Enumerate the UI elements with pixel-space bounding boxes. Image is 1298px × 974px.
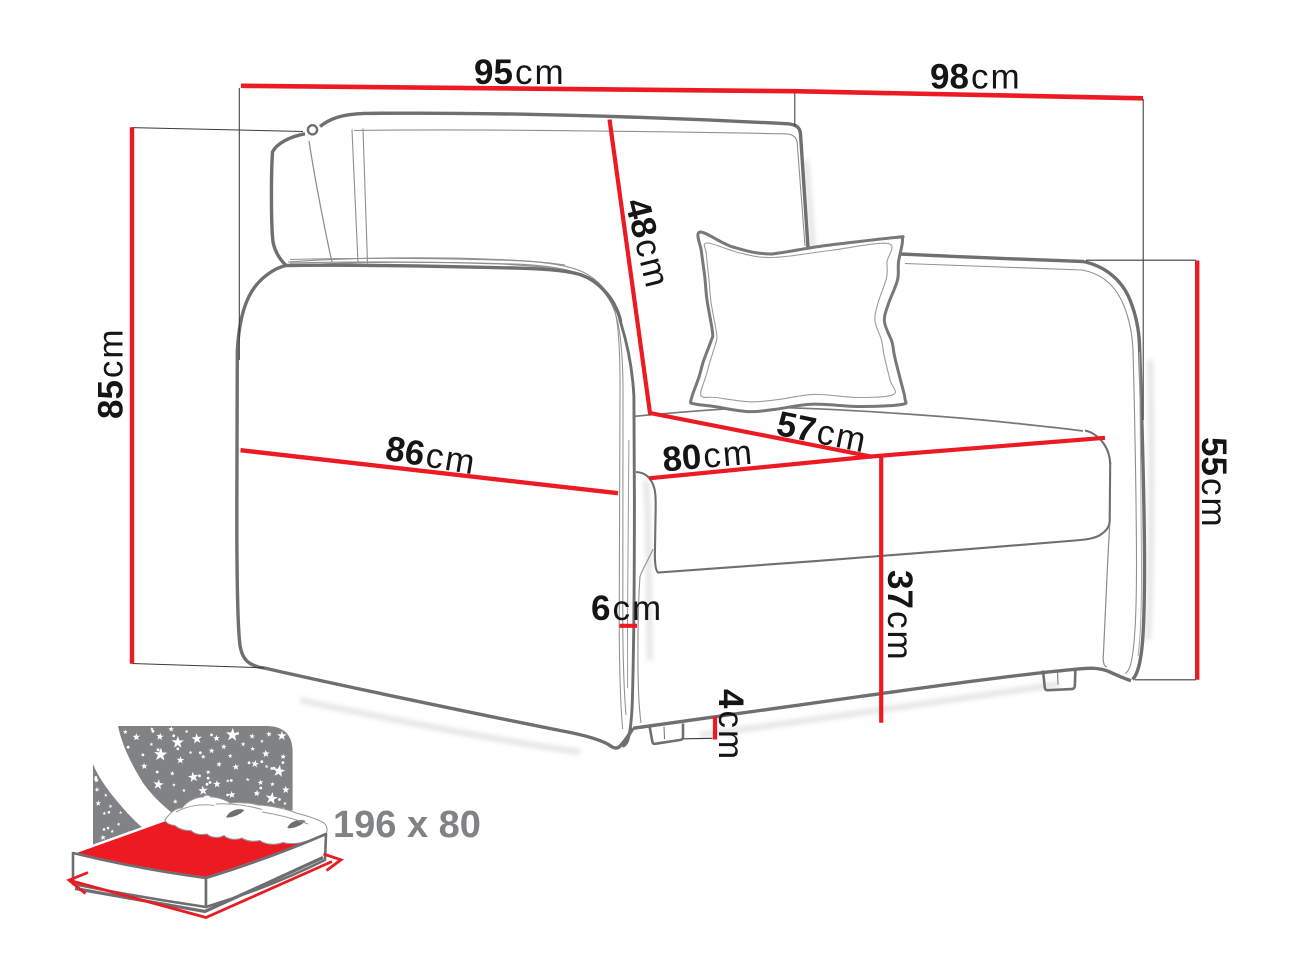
svg-text:4cm: 4cm <box>711 689 750 761</box>
svg-text:95cm: 95cm <box>474 53 566 92</box>
svg-text:80cm: 80cm <box>661 433 756 480</box>
svg-text:85cm: 85cm <box>91 327 130 419</box>
svg-text:196 x 80: 196 x 80 <box>333 804 481 846</box>
svg-text:98cm: 98cm <box>930 58 1022 97</box>
svg-text:57cm: 57cm <box>773 404 871 460</box>
svg-text:55cm: 55cm <box>1194 437 1233 529</box>
svg-text:86cm: 86cm <box>383 429 480 483</box>
svg-text:6cm: 6cm <box>591 589 663 628</box>
svg-text:37cm: 37cm <box>880 570 919 662</box>
